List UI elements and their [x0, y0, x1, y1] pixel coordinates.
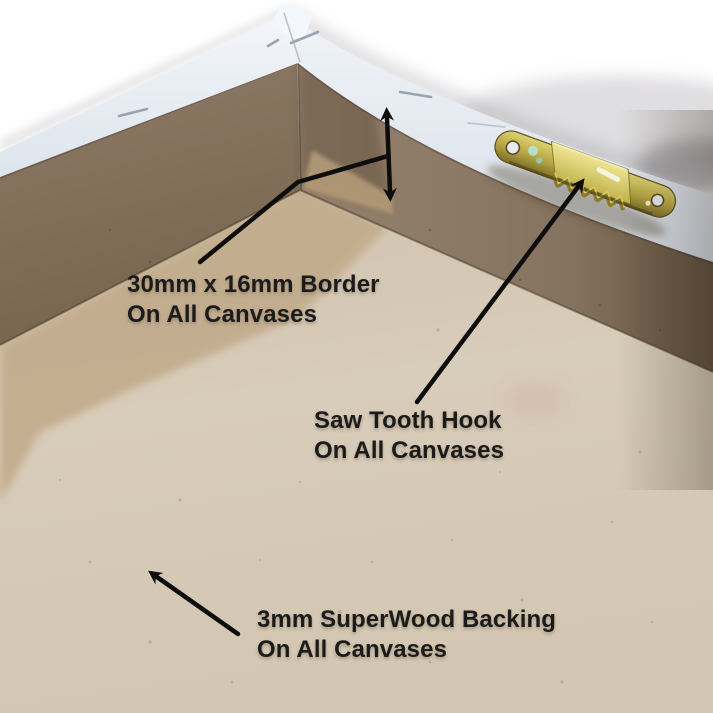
annotation-line-2: On All Canvases	[314, 436, 504, 466]
annotation-line-1: 3mm SuperWood Backing	[257, 605, 556, 635]
annotation-line-1: Saw Tooth Hook	[314, 406, 504, 436]
photo-vignette	[618, 110, 713, 490]
canvas-back-product-photo: 30mm x 16mm Border On All Canvases Saw T…	[0, 0, 713, 713]
annotation-line-2: On All Canvases	[127, 300, 380, 330]
annotation-line-1: 30mm x 16mm Border	[127, 270, 380, 300]
border-size-annotation: 30mm x 16mm Border On All Canvases	[127, 270, 380, 330]
backing-pink-smudge	[505, 382, 565, 418]
backing-annotation: 3mm SuperWood Backing On All Canvases	[257, 605, 556, 665]
border-measure-arrow-down	[389, 154, 391, 191]
border-measure-arrow-up	[387, 118, 389, 154]
saw-tooth-hook-annotation: Saw Tooth Hook On All Canvases	[314, 406, 504, 466]
annotation-line-2: On All Canvases	[257, 635, 556, 665]
